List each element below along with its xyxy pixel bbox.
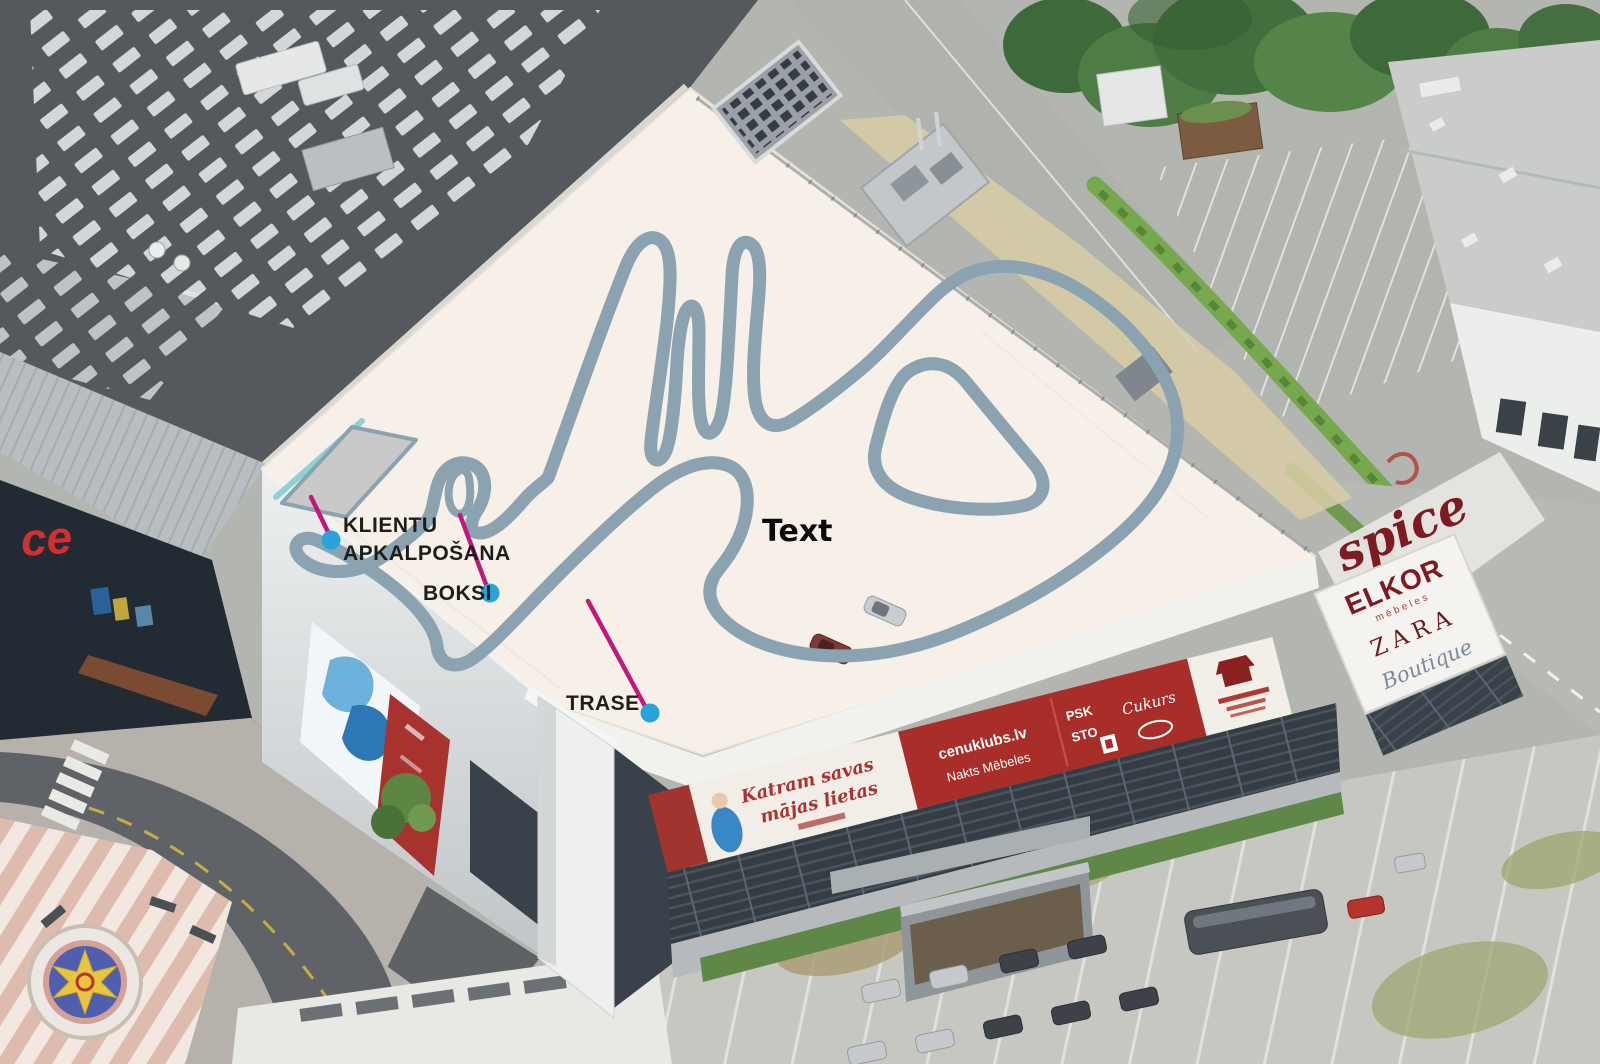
- center-text-note: Text: [762, 514, 833, 549]
- label-klientu-line2: APKALPOŠANA: [343, 541, 511, 565]
- spice-glass-letters: ce: [19, 511, 74, 566]
- label-klientu-line1: KLIENTU: [343, 514, 438, 537]
- aerial-annotated-map: ce: [0, 0, 1600, 1064]
- dot-trase: [641, 704, 660, 723]
- label-boksi: BOKSI: [423, 582, 492, 605]
- scene-canvas: ce: [0, 0, 1600, 1064]
- label-trase: TRASE: [566, 692, 640, 715]
- dot-klientu: [322, 531, 341, 550]
